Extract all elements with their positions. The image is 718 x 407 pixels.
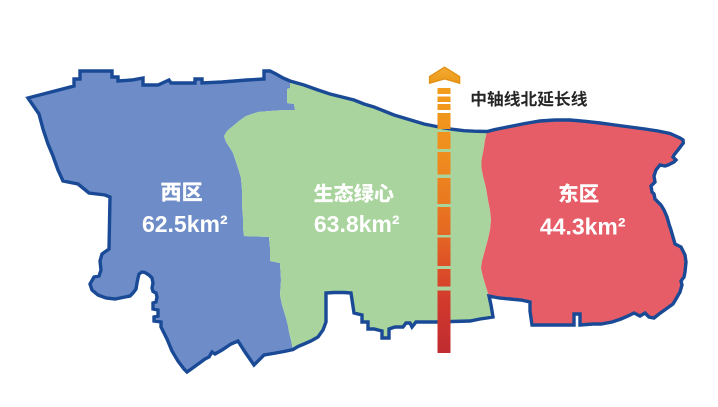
svg-text:62.5km²: 62.5km²	[142, 211, 228, 237]
svg-text:63.8km²: 63.8km²	[314, 211, 400, 237]
svg-text:44.3km²: 44.3km²	[540, 214, 626, 240]
